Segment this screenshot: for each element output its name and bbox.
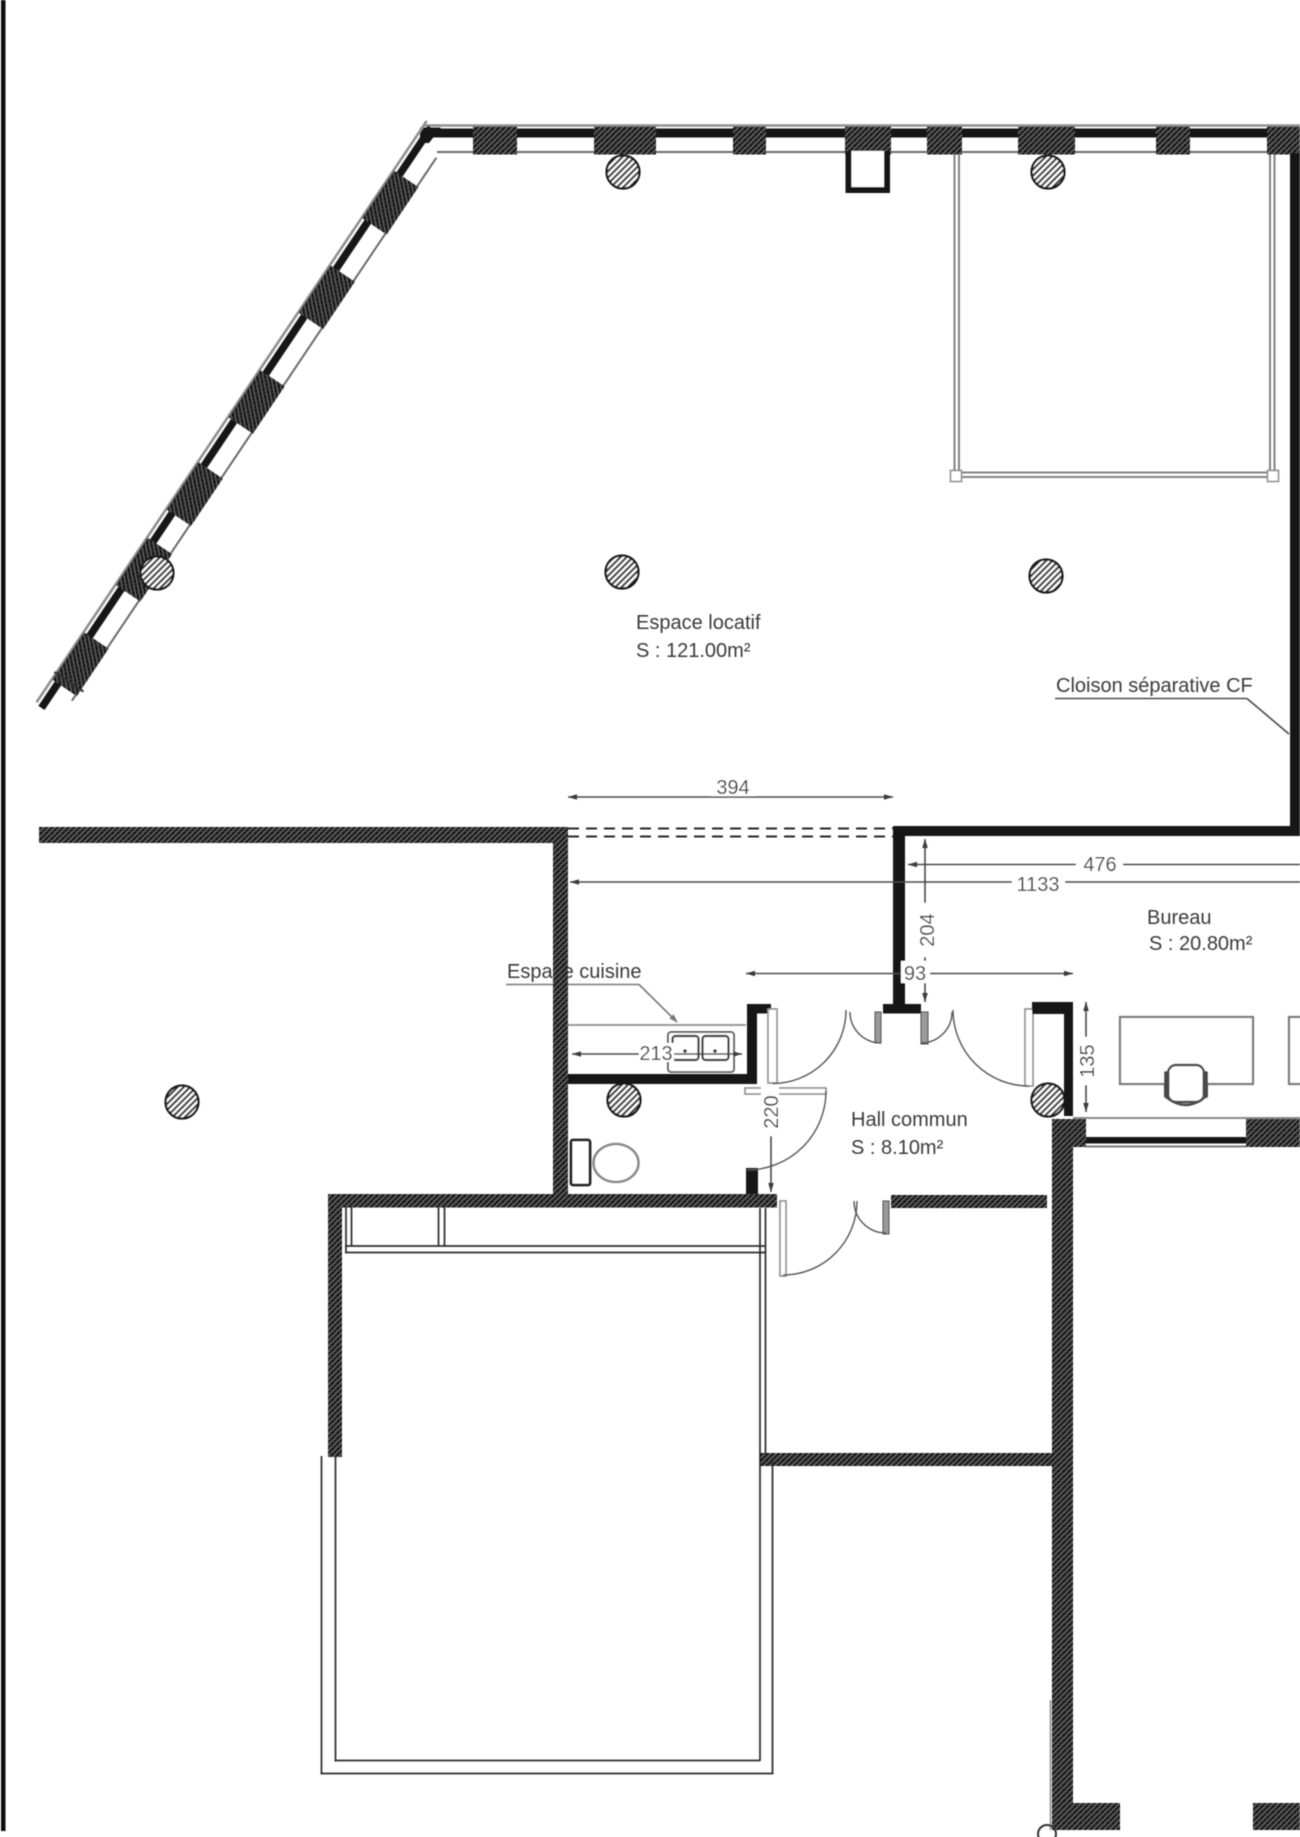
svg-text:Espace locatif: Espace locatif [636,612,761,634]
svg-text:S : 8.10m²: S : 8.10m² [851,1137,944,1159]
svg-text:Espace cuisine: Espace cuisine [507,961,642,983]
svg-text:135: 135 [1077,1044,1099,1077]
svg-text:Cloison séparative CF: Cloison séparative CF [1056,675,1253,697]
svg-text:S : 20.80m²: S : 20.80m² [1149,933,1253,955]
svg-text:394: 394 [716,777,749,799]
svg-text:213: 213 [639,1043,672,1065]
svg-text:S : 121.00m²: S : 121.00m² [636,640,751,662]
svg-text:93: 93 [904,963,926,985]
svg-text:1133: 1133 [1016,874,1059,896]
svg-text:476: 476 [1083,854,1116,876]
svg-text:Bureau: Bureau [1147,907,1212,929]
svg-text:204: 204 [917,913,939,946]
svg-text:220: 220 [761,1095,783,1128]
svg-text:Hall commun: Hall commun [851,1109,968,1131]
